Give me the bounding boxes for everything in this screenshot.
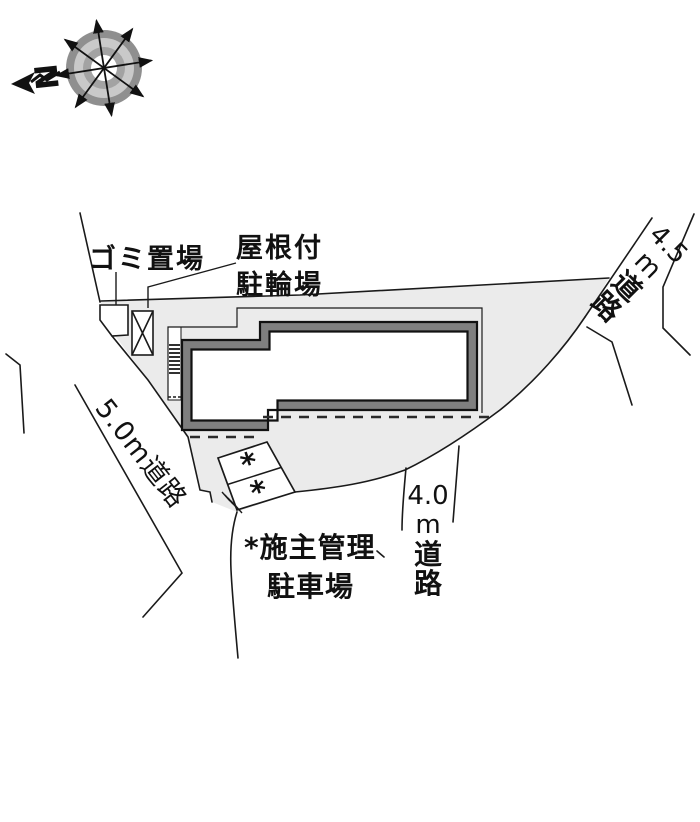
bike-rack xyxy=(132,311,153,355)
bike-label-line1: 屋根付 xyxy=(236,230,323,267)
site-plan-page: { "title": "site-plan", "compass": { "no… xyxy=(0,0,700,822)
compass-spokes xyxy=(49,13,159,123)
owner-parking-note-line2: 駐車場 xyxy=(267,567,376,606)
bike-label-line2: 駐輪場 xyxy=(236,267,323,304)
south-road-kanji1: 道 xyxy=(407,540,448,569)
south-road-right-edge xyxy=(453,446,459,522)
far-left-boundary xyxy=(6,354,24,433)
boundary-below-parking xyxy=(231,512,238,658)
owner-parking-note-line1: *施主管理 xyxy=(244,528,376,567)
south-road-width: 4.0 xyxy=(407,482,448,511)
south-road-left-edge xyxy=(402,468,406,530)
garbage-area-label: ゴミ置場 xyxy=(89,237,205,276)
south-road-kanji2: 路 xyxy=(407,569,448,598)
covered-bike-parking-label: 屋根付 駐輪場 xyxy=(236,230,323,304)
east-parcel-boundary xyxy=(587,327,632,405)
owner-parking-note: *施主管理 駐車場 xyxy=(244,528,376,606)
compass-rose: N xyxy=(11,13,159,123)
north-label: N xyxy=(26,62,65,92)
south-road-unit: m xyxy=(407,511,448,540)
south-road-label: 4.0 m 道 路 xyxy=(407,482,448,598)
staircase xyxy=(168,327,181,400)
garbage-box xyxy=(100,305,128,336)
small-boundary-tick xyxy=(377,551,384,557)
